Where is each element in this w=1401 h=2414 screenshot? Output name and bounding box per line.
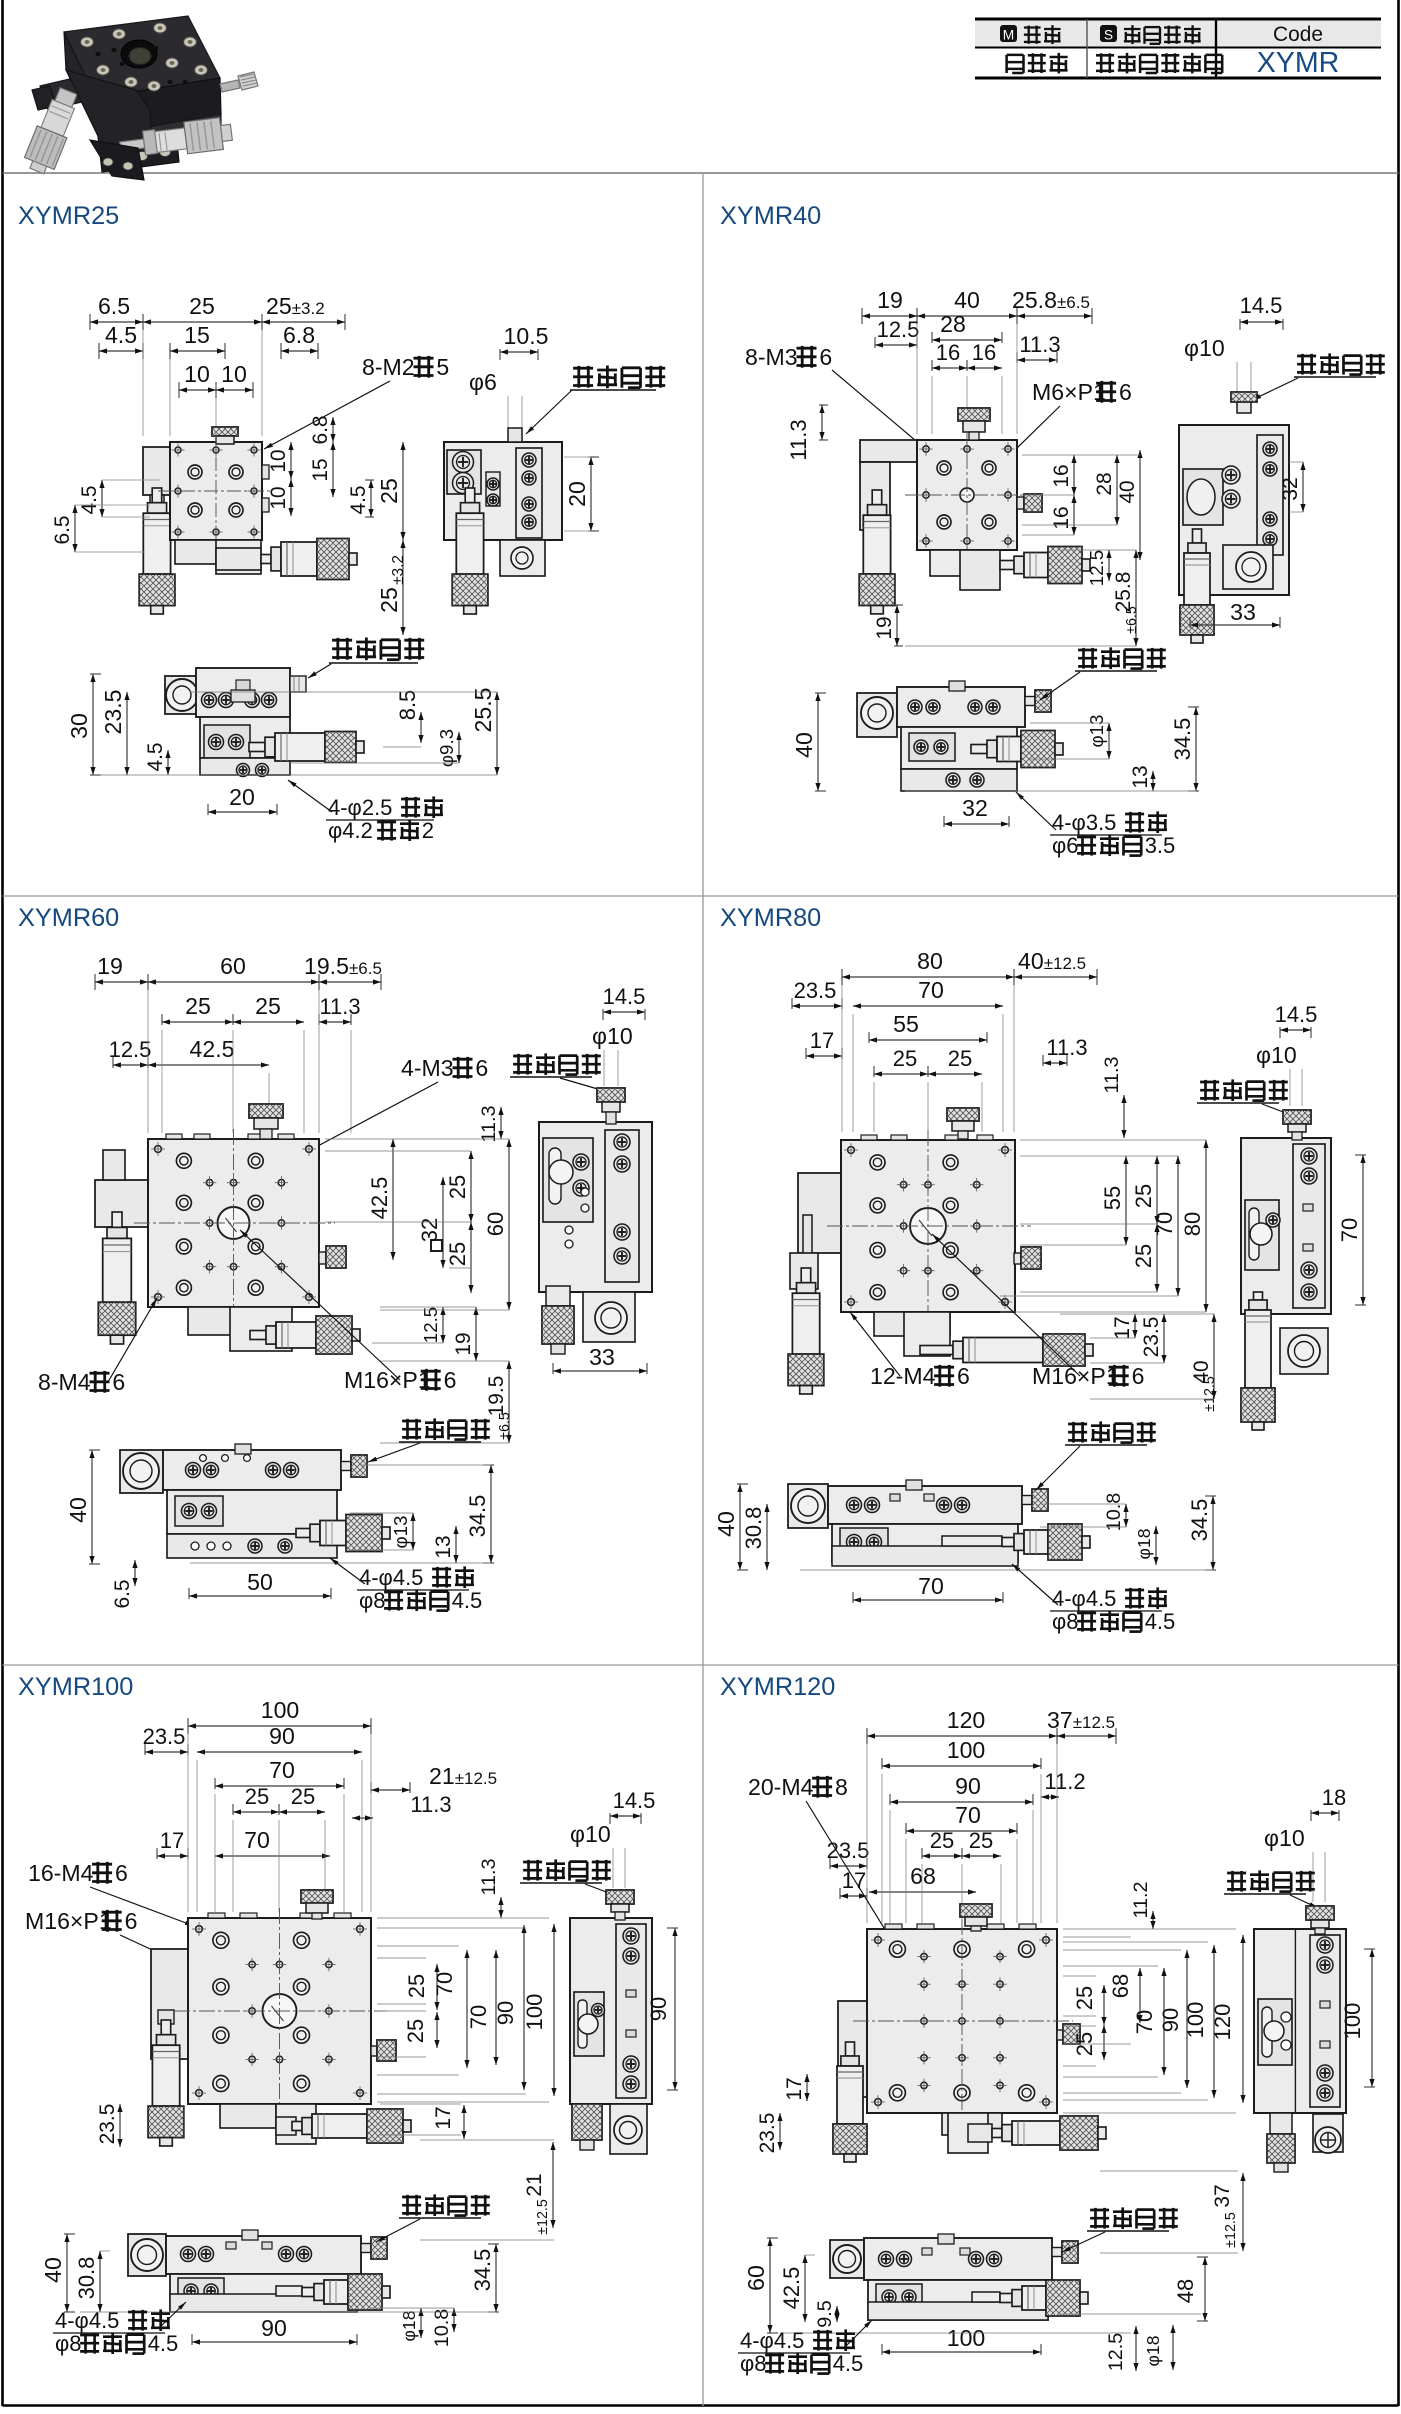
svg-text:40: 40: [713, 1511, 739, 1537]
svg-text:16: 16: [936, 340, 960, 365]
svg-text:±12.5: ±12.5: [1223, 2212, 1239, 2248]
svg-text:±12.5: ±12.5: [1202, 1376, 1218, 1412]
svg-text:4-φ4.5: 4-φ4.5: [359, 1565, 423, 1590]
svg-text:8-M3: 8-M3: [745, 344, 798, 370]
svg-text:32: 32: [417, 1218, 442, 1242]
svg-text:XYMR100: XYMR100: [18, 1673, 133, 1701]
svg-text:11.3: 11.3: [478, 1858, 500, 1895]
svg-text:25: 25: [376, 478, 402, 504]
svg-text:48: 48: [1173, 2279, 1198, 2303]
svg-text:25: 25: [1131, 1244, 1156, 1268]
svg-text:6: 6: [115, 1860, 128, 1886]
svg-text:φ10: φ10: [592, 1023, 633, 1049]
svg-text:4-φ4.5: 4-φ4.5: [740, 2328, 804, 2353]
svg-text:25: 25: [893, 1046, 917, 1071]
svg-text:12.5: 12.5: [109, 1037, 152, 1062]
svg-text:5: 5: [436, 354, 449, 380]
svg-text:17: 17: [160, 1828, 184, 1853]
svg-text:25: 25: [445, 1242, 470, 1266]
svg-text:6: 6: [444, 1367, 457, 1393]
svg-text:φ9.3: φ9.3: [436, 729, 457, 767]
svg-text:25: 25: [189, 293, 215, 319]
svg-text:11.3: 11.3: [1101, 1056, 1123, 1093]
svg-text:15: 15: [309, 458, 332, 481]
svg-text:16: 16: [1050, 464, 1073, 487]
svg-text:13: 13: [1129, 765, 1152, 788]
svg-text:42.5: 42.5: [190, 1036, 235, 1062]
svg-text:25.5: 25.5: [470, 688, 496, 733]
svg-text:23.5: 23.5: [96, 2104, 119, 2145]
svg-text:25: 25: [291, 1784, 315, 1809]
svg-text:42.5: 42.5: [779, 2267, 804, 2310]
svg-text:6.5: 6.5: [111, 1579, 134, 1608]
svg-text:6.8: 6.8: [309, 415, 332, 444]
svg-text:23.5: 23.5: [794, 978, 837, 1003]
svg-text:32: 32: [962, 795, 988, 821]
svg-text:φ10: φ10: [570, 1821, 611, 1847]
svg-text:40±12.5: 40±12.5: [1018, 948, 1086, 974]
svg-text:70: 70: [466, 2005, 491, 2029]
svg-text:XYMR25: XYMR25: [18, 202, 119, 230]
svg-text:30.8: 30.8: [74, 2257, 99, 2300]
svg-text:6.5: 6.5: [98, 293, 130, 319]
svg-text:16-M4: 16-M4: [28, 1860, 94, 1886]
svg-text:4.5: 4.5: [1145, 1609, 1176, 1634]
svg-text:φ8: φ8: [359, 1588, 386, 1613]
svg-text:12.5: 12.5: [1086, 550, 1107, 586]
svg-text:17: 17: [1111, 1316, 1134, 1339]
svg-text:10: 10: [267, 486, 290, 509]
svg-text:25: 25: [185, 993, 211, 1019]
svg-text:23.5: 23.5: [143, 1724, 186, 1749]
svg-text:φ8: φ8: [740, 2351, 767, 2376]
svg-text:11.3: 11.3: [1046, 1035, 1087, 1060]
svg-text:60: 60: [743, 2265, 769, 2291]
svg-text:φ8: φ8: [1052, 1609, 1079, 1634]
svg-text:25: 25: [445, 1175, 470, 1199]
svg-text:11.3: 11.3: [786, 419, 811, 460]
svg-text:90: 90: [493, 2001, 518, 2025]
svg-text:6: 6: [1132, 1363, 1145, 1389]
svg-text:M16×P1: M16×P1: [25, 1908, 112, 1934]
svg-text:34.5: 34.5: [465, 1495, 490, 1538]
svg-text:90: 90: [261, 2315, 287, 2341]
svg-text:XYMR60: XYMR60: [18, 904, 119, 932]
svg-text:25: 25: [969, 1828, 993, 1853]
svg-text:25: 25: [404, 1974, 429, 1998]
svg-text:70: 70: [244, 1827, 270, 1853]
svg-text:17: 17: [842, 1868, 866, 1893]
svg-text:42.5: 42.5: [367, 1177, 392, 1220]
svg-text:10.8: 10.8: [1103, 1493, 1125, 1532]
svg-text:4.5: 4.5: [144, 742, 167, 771]
svg-text:19: 19: [877, 287, 903, 313]
svg-text:12.5: 12.5: [1105, 2333, 1127, 2372]
svg-text:4-φ3.5: 4-φ3.5: [1052, 810, 1116, 835]
svg-text:55: 55: [1100, 1186, 1125, 1210]
svg-text:55: 55: [893, 1011, 919, 1037]
svg-text:4.5: 4.5: [78, 485, 101, 514]
svg-text:17: 17: [432, 2106, 455, 2129]
svg-text:120: 120: [947, 1707, 986, 1733]
svg-text:4-φ2.5: 4-φ2.5: [328, 795, 392, 820]
svg-text:19.5: 19.5: [485, 1376, 508, 1417]
svg-text:8-M4: 8-M4: [38, 1369, 91, 1395]
svg-text:60: 60: [220, 953, 246, 979]
svg-text:23.5: 23.5: [100, 690, 126, 735]
svg-text:50: 50: [247, 1569, 273, 1595]
svg-text:14.5: 14.5: [613, 1788, 656, 1813]
svg-text:34.5: 34.5: [1187, 1499, 1212, 1542]
svg-text:6.5: 6.5: [51, 515, 74, 544]
svg-text:19.5±6.5: 19.5±6.5: [304, 953, 382, 979]
svg-text:13: 13: [432, 1535, 455, 1558]
svg-text:34.5: 34.5: [1170, 718, 1195, 761]
svg-text:23.5: 23.5: [1140, 1317, 1163, 1358]
svg-text:φ4.2: φ4.2: [328, 818, 373, 843]
svg-text:M: M: [1003, 28, 1014, 43]
svg-text:11.2: 11.2: [1044, 1769, 1085, 1794]
svg-text:12.5: 12.5: [420, 1307, 441, 1343]
svg-text:40: 40: [954, 287, 980, 313]
svg-text:M16×P1: M16×P1: [1032, 1363, 1119, 1389]
svg-text:20-M4: 20-M4: [748, 1774, 814, 1800]
svg-text:21±12.5: 21±12.5: [429, 1763, 497, 1789]
svg-text:23.5: 23.5: [756, 2113, 779, 2154]
svg-text:4.5: 4.5: [148, 2331, 179, 2356]
svg-text:25: 25: [948, 1046, 972, 1071]
svg-text:φ18: φ18: [1143, 2335, 1163, 2366]
svg-text:XYMR120: XYMR120: [720, 1673, 835, 1701]
svg-text:19: 19: [873, 616, 896, 639]
svg-text:14.5: 14.5: [1275, 1002, 1318, 1027]
svg-text:68: 68: [1108, 1974, 1133, 1998]
svg-text:17: 17: [783, 2077, 806, 2100]
svg-text:11.3: 11.3: [478, 1105, 500, 1142]
svg-text:M6×P1: M6×P1: [1032, 379, 1106, 405]
svg-text:37: 37: [1211, 2184, 1234, 2207]
svg-text:4.5: 4.5: [347, 485, 370, 514]
svg-text:φ18: φ18: [1134, 1528, 1154, 1559]
svg-text:40: 40: [65, 1497, 91, 1523]
svg-text:28: 28: [940, 311, 966, 337]
svg-text:8: 8: [835, 1774, 848, 1800]
svg-text:68: 68: [910, 1863, 936, 1889]
svg-text:18: 18: [1322, 1785, 1346, 1810]
svg-text:6: 6: [1119, 379, 1132, 405]
svg-text:4-φ4.5: 4-φ4.5: [55, 2308, 119, 2333]
svg-text:φ18: φ18: [399, 2310, 419, 2341]
svg-text:33: 33: [589, 1344, 615, 1370]
svg-text:100: 100: [1183, 2002, 1208, 2039]
svg-text:70: 70: [1132, 2010, 1157, 2034]
svg-text:4-φ4.5: 4-φ4.5: [1052, 1586, 1116, 1611]
svg-text:30.8: 30.8: [741, 1507, 766, 1550]
svg-text:70: 70: [918, 1573, 944, 1599]
svg-text:φ13: φ13: [1086, 715, 1107, 748]
svg-text:10: 10: [221, 361, 247, 387]
svg-text:10: 10: [184, 361, 210, 387]
svg-text:40: 40: [1116, 480, 1139, 503]
svg-text:20: 20: [564, 481, 590, 507]
svg-text:90: 90: [955, 1773, 981, 1799]
svg-text:4.5: 4.5: [833, 2351, 864, 2376]
svg-text:3.5: 3.5: [1145, 833, 1176, 858]
svg-text:XYMR40: XYMR40: [720, 202, 821, 230]
svg-text:32: 32: [1279, 477, 1302, 500]
svg-text:25±3.2: 25±3.2: [266, 293, 325, 319]
svg-text:φ6: φ6: [1052, 833, 1079, 858]
svg-text:6: 6: [957, 1363, 970, 1389]
svg-text:34.5: 34.5: [470, 2249, 495, 2292]
svg-text:XYMR80: XYMR80: [720, 904, 821, 932]
svg-text:φ10: φ10: [1184, 335, 1225, 361]
svg-text:80: 80: [917, 948, 943, 974]
svg-text:Code: Code: [1273, 23, 1323, 46]
svg-text:2: 2: [422, 818, 434, 843]
svg-text:4-M3: 4-M3: [401, 1055, 454, 1081]
svg-text:10.5: 10.5: [504, 323, 549, 349]
svg-text:21: 21: [523, 2173, 546, 2196]
svg-text:90: 90: [1158, 2008, 1183, 2032]
svg-text:4.5: 4.5: [105, 322, 137, 348]
svg-text:25: 25: [255, 993, 281, 1019]
svg-text:14.5: 14.5: [603, 984, 646, 1009]
svg-text:16: 16: [1050, 506, 1073, 529]
svg-text:10: 10: [267, 449, 290, 472]
svg-text:37±12.5: 37±12.5: [1047, 1707, 1115, 1733]
svg-text:25: 25: [376, 587, 402, 613]
svg-text:12-M4: 12-M4: [870, 1363, 936, 1389]
svg-text:11.3: 11.3: [319, 994, 360, 1019]
svg-text:30: 30: [66, 713, 92, 739]
svg-text:φ8: φ8: [55, 2331, 82, 2356]
svg-text:6: 6: [475, 1055, 488, 1081]
svg-text:6: 6: [819, 344, 832, 370]
svg-text:17: 17: [810, 1028, 834, 1053]
svg-text:6: 6: [112, 1369, 125, 1395]
svg-text:φ10: φ10: [1264, 1825, 1305, 1851]
svg-text:25.8±6.5: 25.8±6.5: [1012, 287, 1090, 313]
svg-text:10.8: 10.8: [431, 2309, 453, 2348]
svg-text:8-M2: 8-M2: [362, 354, 415, 380]
svg-text:6: 6: [125, 1908, 138, 1934]
svg-text:100: 100: [947, 2325, 986, 2351]
svg-text:100: 100: [522, 1994, 547, 2031]
svg-text:15: 15: [184, 322, 210, 348]
svg-text:19: 19: [452, 1332, 475, 1355]
svg-text:28: 28: [1093, 472, 1116, 495]
svg-text:φ13: φ13: [390, 1516, 411, 1549]
svg-text:6.8: 6.8: [283, 322, 315, 348]
svg-text:60: 60: [483, 1212, 508, 1236]
svg-text:14.5: 14.5: [1240, 293, 1283, 318]
svg-text:20: 20: [229, 784, 255, 810]
svg-text:φ10: φ10: [1256, 1042, 1297, 1068]
svg-text:25: 25: [930, 1828, 954, 1853]
svg-text:40: 40: [40, 2257, 66, 2283]
svg-text:25: 25: [1131, 1184, 1156, 1208]
svg-text:9.5: 9.5: [814, 2300, 836, 2328]
svg-text:100: 100: [1340, 2003, 1365, 2040]
svg-text:70: 70: [269, 1757, 295, 1783]
svg-text:XYMR: XYMR: [1257, 47, 1340, 79]
svg-text:100: 100: [261, 1697, 300, 1723]
svg-text:±12.5: ±12.5: [535, 2199, 551, 2235]
svg-text:23.5: 23.5: [827, 1838, 870, 1863]
svg-text:4.5: 4.5: [452, 1588, 483, 1613]
svg-text:70: 70: [432, 1972, 457, 1996]
svg-text:70: 70: [955, 1802, 981, 1828]
svg-text:33: 33: [1230, 599, 1256, 625]
svg-text:25: 25: [245, 1784, 269, 1809]
svg-text:11.3: 11.3: [1019, 332, 1060, 357]
svg-text:80: 80: [1180, 1212, 1205, 1236]
svg-text:±3.2: ±3.2: [390, 555, 407, 585]
svg-text:25: 25: [1072, 1986, 1097, 2010]
svg-text:12.5: 12.5: [877, 317, 920, 342]
svg-text:70: 70: [1337, 1218, 1362, 1242]
svg-text:120: 120: [1210, 2004, 1235, 2041]
svg-text:±6.5: ±6.5: [497, 1412, 513, 1440]
svg-text:±6.5: ±6.5: [1124, 606, 1140, 634]
svg-text:90: 90: [269, 1723, 295, 1749]
svg-text:11.3: 11.3: [410, 1792, 451, 1817]
svg-text:8.5: 8.5: [395, 690, 420, 721]
svg-text:S: S: [1104, 28, 1113, 43]
svg-text:100: 100: [947, 1737, 986, 1763]
svg-text:16: 16: [972, 340, 996, 365]
svg-text:M16×P1: M16×P1: [344, 1367, 431, 1393]
svg-text:70: 70: [918, 977, 944, 1003]
svg-text:11.2: 11.2: [1130, 1881, 1152, 1918]
svg-text:φ6: φ6: [469, 369, 497, 395]
svg-text:25: 25: [403, 2019, 428, 2043]
svg-text:19: 19: [97, 953, 123, 979]
svg-text:90: 90: [646, 1997, 671, 2021]
svg-text:40: 40: [791, 732, 817, 758]
